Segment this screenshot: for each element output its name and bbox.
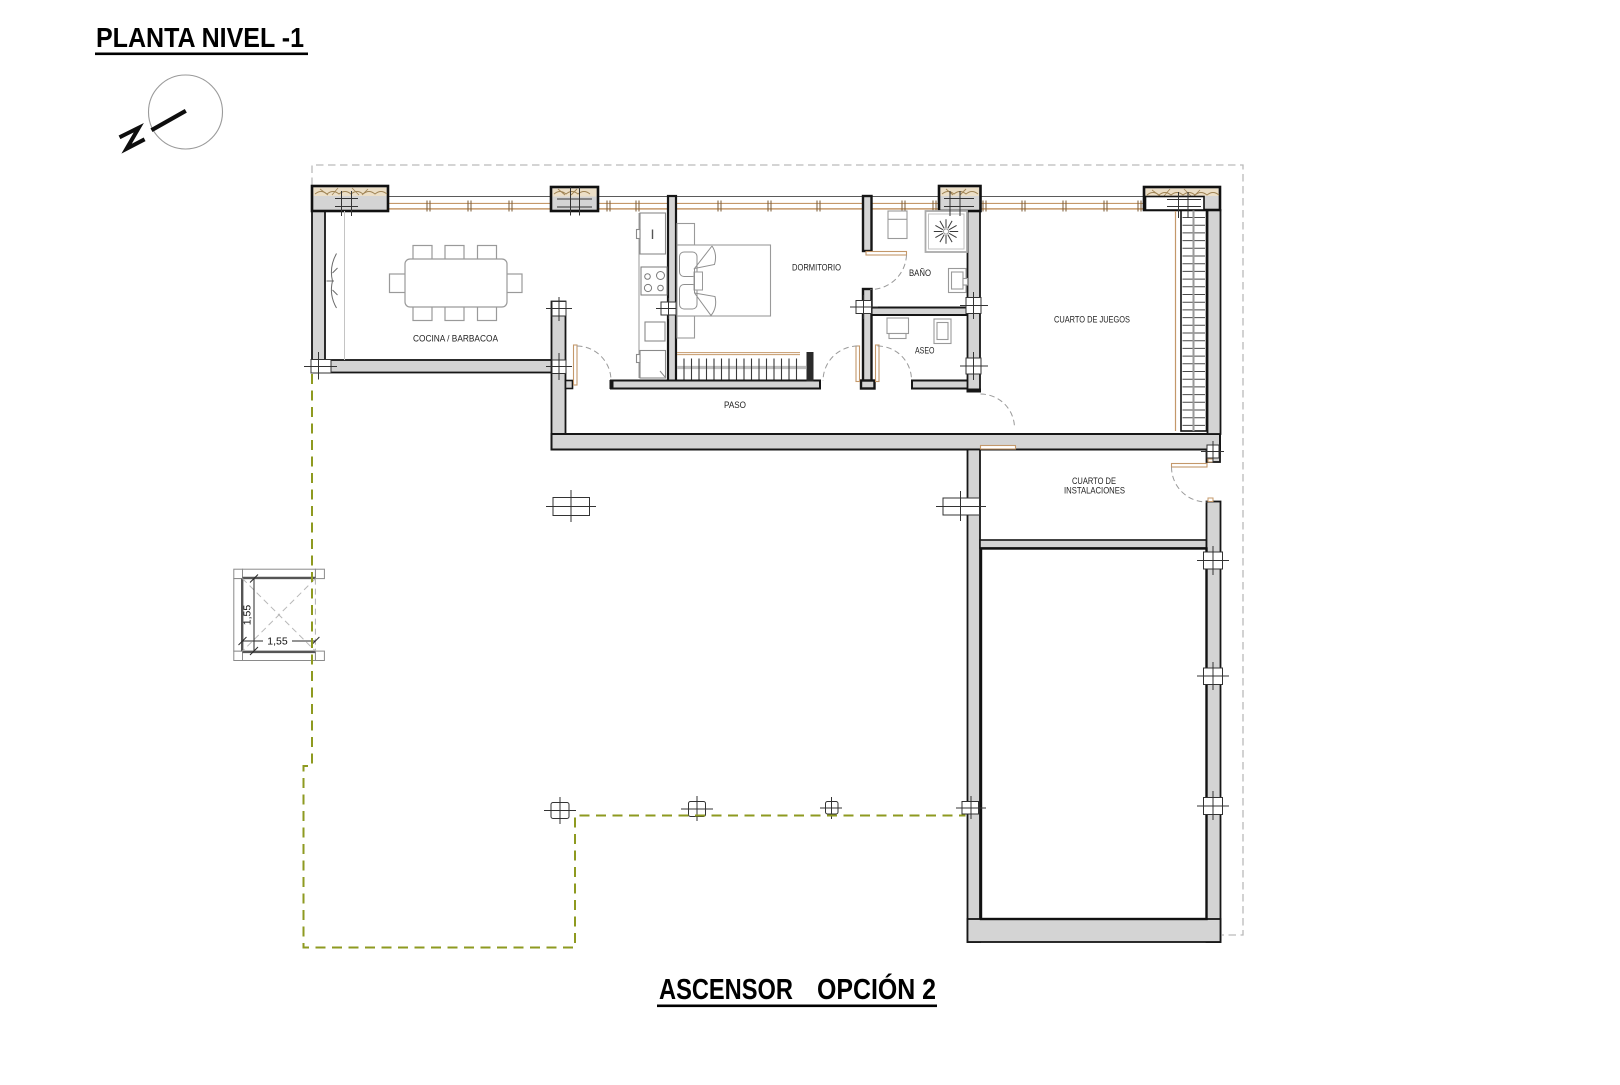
svg-text:CUARTO DE JUEGOS: CUARTO DE JUEGOS (1054, 315, 1130, 325)
svg-text:1,55: 1,55 (267, 636, 288, 648)
svg-text:PASO: PASO (724, 400, 746, 410)
svg-text:OPCIÓN 2: OPCIÓN 2 (817, 974, 936, 1006)
svg-text:1,55: 1,55 (242, 605, 254, 626)
svg-text:CUARTO DE: CUARTO DE (1072, 476, 1116, 486)
svg-text:PLANTA NIVEL -1: PLANTA NIVEL -1 (96, 22, 304, 53)
svg-text:BAÑO: BAÑO (909, 268, 931, 278)
svg-text:ASCENSOR: ASCENSOR (659, 974, 793, 1006)
svg-text:INSTALACIONES: INSTALACIONES (1064, 486, 1125, 496)
svg-text:COCINA / BARBACOA: COCINA / BARBACOA (413, 334, 499, 344)
svg-text:DORMITORIO: DORMITORIO (792, 263, 841, 273)
svg-text:ASEO: ASEO (915, 346, 935, 356)
